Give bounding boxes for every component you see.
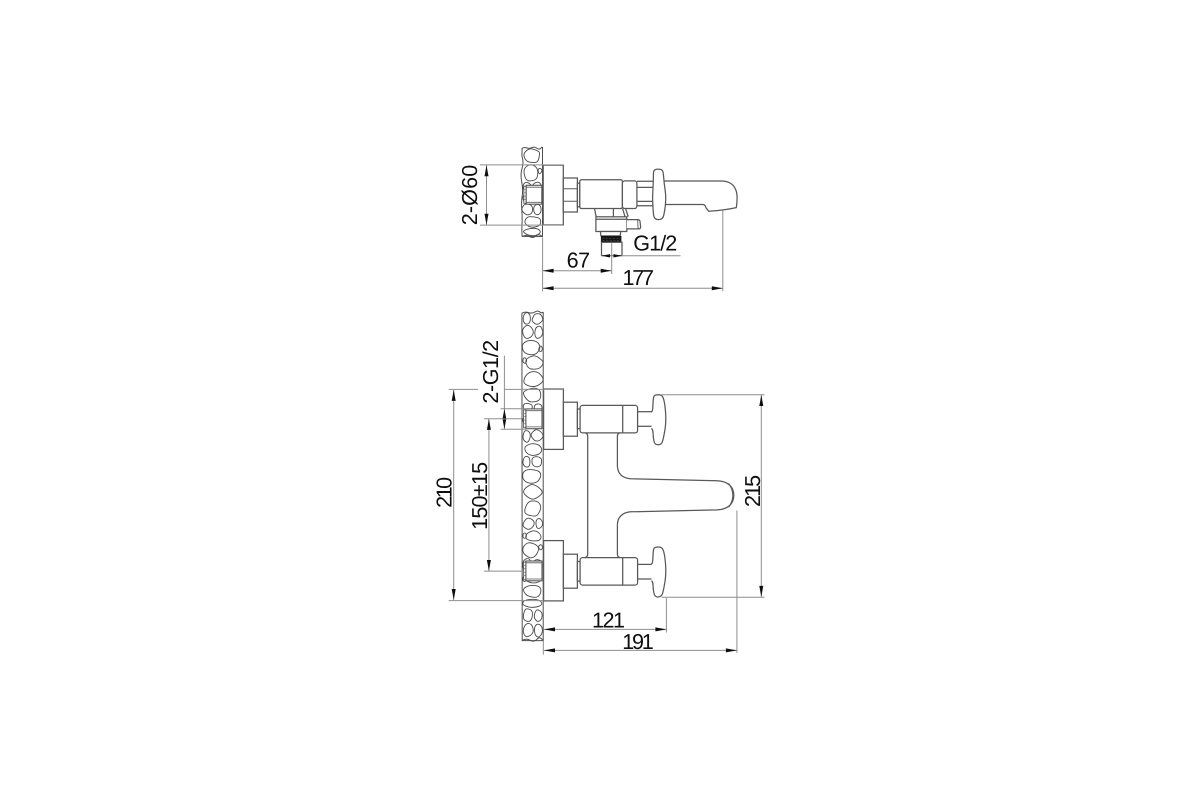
svg-text:67: 67 xyxy=(567,247,591,272)
svg-text:210: 210 xyxy=(432,477,457,508)
svg-text:2-Ø60: 2-Ø60 xyxy=(457,165,482,226)
svg-text:177: 177 xyxy=(623,265,655,290)
svg-text:121: 121 xyxy=(592,607,625,632)
svg-text:150±15: 150±15 xyxy=(467,462,492,530)
svg-text:215: 215 xyxy=(740,475,765,507)
svg-text:G1/2: G1/2 xyxy=(633,231,677,256)
svg-text:2-G1/2: 2-G1/2 xyxy=(478,340,503,404)
svg-text:191: 191 xyxy=(622,629,654,654)
